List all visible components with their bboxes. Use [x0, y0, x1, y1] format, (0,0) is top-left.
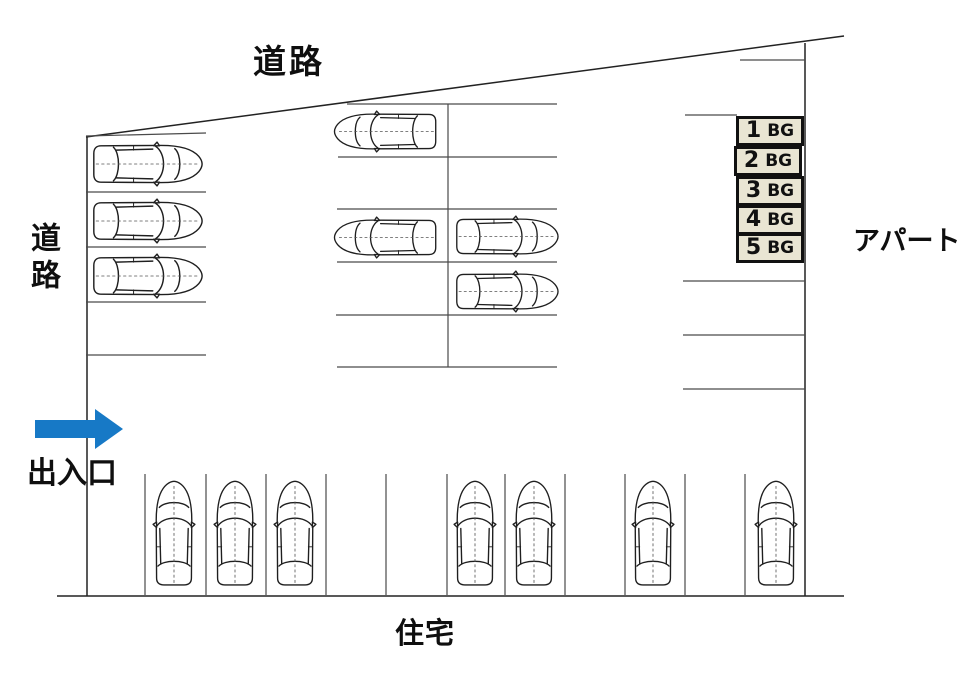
road-edge-diagonal — [86, 36, 844, 137]
car-icon — [94, 254, 202, 298]
diagram-linework — [0, 0, 964, 673]
car-icon — [755, 481, 797, 585]
space-suffix: BG — [765, 153, 792, 170]
car-icon — [94, 199, 202, 243]
space-suffix: BG — [767, 183, 794, 200]
car-icon — [457, 271, 558, 312]
space-suffix: BG — [767, 123, 794, 140]
space-number: 2 — [744, 150, 759, 172]
car-icon — [454, 481, 496, 585]
space-suffix: BG — [767, 212, 794, 229]
car-icon — [334, 111, 435, 152]
parking-space-1: 1 BG — [736, 116, 804, 146]
residence-label: 住宅 — [395, 618, 455, 650]
road-label-left: 道路 — [26, 222, 59, 296]
space-suffix: BG — [767, 240, 794, 257]
parking-space-5: 5 BG — [736, 233, 804, 263]
car-icon — [274, 481, 316, 585]
parking-lot-diagram: 道路 道路 出入口 アパート 住宅 1 BG 2 BG 3 BG 4 BG 5 … — [0, 0, 964, 673]
parking-space-4: 4 BG — [736, 205, 804, 235]
car-icon — [513, 481, 555, 585]
space-number: 5 — [746, 237, 761, 259]
car-icon — [94, 142, 202, 186]
car-icon — [214, 481, 256, 585]
apartment-label: アパート — [853, 227, 960, 257]
parking-space-3: 3 BG — [736, 176, 804, 206]
road-label-top: 道路 — [253, 44, 325, 80]
space-number: 1 — [746, 120, 761, 142]
car-icon — [632, 481, 674, 585]
entrance-label: 出入口 — [27, 457, 117, 490]
car-icon — [334, 217, 435, 258]
car-icon — [457, 216, 558, 257]
space-number: 3 — [746, 180, 761, 202]
parked-cars — [94, 111, 797, 585]
space-number: 4 — [746, 209, 761, 231]
entrance-arrow-icon — [35, 409, 123, 449]
car-icon — [153, 481, 195, 585]
parking-space-2: 2 BG — [734, 146, 802, 176]
